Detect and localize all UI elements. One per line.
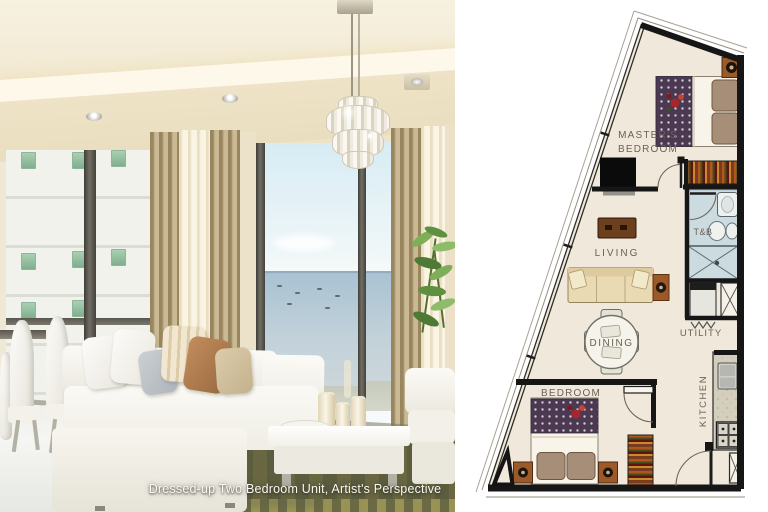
burner-dot <box>733 440 736 443</box>
sparkle <box>346 110 351 115</box>
sofa-pillow <box>631 270 649 290</box>
building-window <box>21 302 36 319</box>
label-masters-bedroom: MASTER'S <box>618 130 678 141</box>
building-window <box>21 253 36 270</box>
coffee-table-front <box>274 446 404 474</box>
boat <box>277 285 282 287</box>
door-leaf <box>624 387 653 394</box>
bed-pillow <box>537 453 565 480</box>
bed-flower <box>568 406 573 411</box>
door-hinge <box>705 442 713 451</box>
label-dining: DINING <box>590 338 634 349</box>
boat <box>295 292 300 294</box>
label-utility: UTILITY <box>680 328 722 339</box>
bed-pillow <box>712 113 739 144</box>
armchair-seat <box>408 410 455 444</box>
sofa-foot <box>225 503 235 508</box>
table-knob <box>620 225 627 230</box>
bed-flower <box>579 405 585 411</box>
boat <box>335 295 340 297</box>
armchair <box>405 368 455 414</box>
window-sea-view <box>366 141 391 433</box>
building-window <box>111 150 126 167</box>
burner-dot <box>722 440 725 443</box>
bed-flower <box>667 94 672 99</box>
recessed-light <box>404 74 430 90</box>
unit-photo: Dressed-up Two Bedroom Unit, Artist's Pe… <box>0 0 455 512</box>
bed-pillow <box>712 80 739 111</box>
indoor-plant <box>408 228 455 340</box>
plant-leaf <box>418 285 447 297</box>
chandelier-mount <box>337 0 373 14</box>
building-window <box>111 249 126 266</box>
bed-flower <box>667 107 671 111</box>
chandelier <box>324 96 390 172</box>
placemat <box>600 325 620 338</box>
cloud <box>273 235 335 251</box>
speaker <box>730 66 734 70</box>
boat <box>325 307 330 309</box>
label-kitchen: KITCHEN <box>698 375 709 427</box>
table-knob <box>605 225 612 230</box>
recessed-light <box>86 112 102 121</box>
boat <box>287 303 292 305</box>
bed-pillow <box>567 453 595 480</box>
burner-dot <box>733 428 736 431</box>
glass-vase <box>344 360 351 398</box>
sink-basin <box>720 378 735 388</box>
throw-pillow <box>214 347 253 395</box>
building-window <box>21 152 36 169</box>
toilet-tank <box>726 223 738 239</box>
floor-plan-panel: MASTER'S BEDROOM LIVING DINING T&B UTILI… <box>455 0 768 512</box>
speaker <box>521 471 525 475</box>
label-masters-bedroom: BEDROOM <box>618 144 678 155</box>
boat <box>317 288 322 290</box>
bed-flower <box>671 99 680 108</box>
floor-plan: MASTER'S BEDROOM LIVING DINING T&B UTILI… <box>455 0 768 512</box>
master-closet <box>687 161 740 184</box>
dresser <box>628 435 653 485</box>
armchair-base <box>412 442 455 484</box>
sparkle <box>368 134 372 138</box>
tv <box>600 158 636 188</box>
recessed-light <box>222 94 238 103</box>
shower-drain <box>715 261 719 265</box>
chandelier-cord <box>358 0 360 104</box>
coffee-table-top <box>268 426 410 446</box>
sofa-chaise <box>52 428 247 512</box>
bed-runner <box>531 399 598 433</box>
window-mullion <box>358 143 366 433</box>
burner-dot <box>722 428 725 431</box>
sea <box>366 271 391 385</box>
speaker <box>659 286 663 290</box>
photo-caption: Dressed-up Two Bedroom Unit, Artist's Pe… <box>135 482 455 496</box>
dining-chair <box>8 320 48 452</box>
label-tb: T&B <box>693 227 712 237</box>
bed-flower <box>572 410 581 419</box>
speaker <box>606 471 610 475</box>
chandelier-tier <box>342 151 374 169</box>
door-hinge <box>678 157 685 164</box>
bed-flower <box>678 94 684 100</box>
sofa-foot <box>95 506 105 511</box>
chandelier-cord <box>351 0 353 104</box>
washer-panel <box>690 283 716 290</box>
sink-basin <box>722 197 734 213</box>
coffee-table <box>598 218 636 238</box>
brochure-page: Dressed-up Two Bedroom Unit, Artist's Pe… <box>0 0 768 512</box>
label-bedroom: BEDROOM <box>541 388 601 399</box>
label-living: LIVING <box>595 248 640 259</box>
sink-basin <box>720 365 735 376</box>
coastline <box>366 381 391 411</box>
